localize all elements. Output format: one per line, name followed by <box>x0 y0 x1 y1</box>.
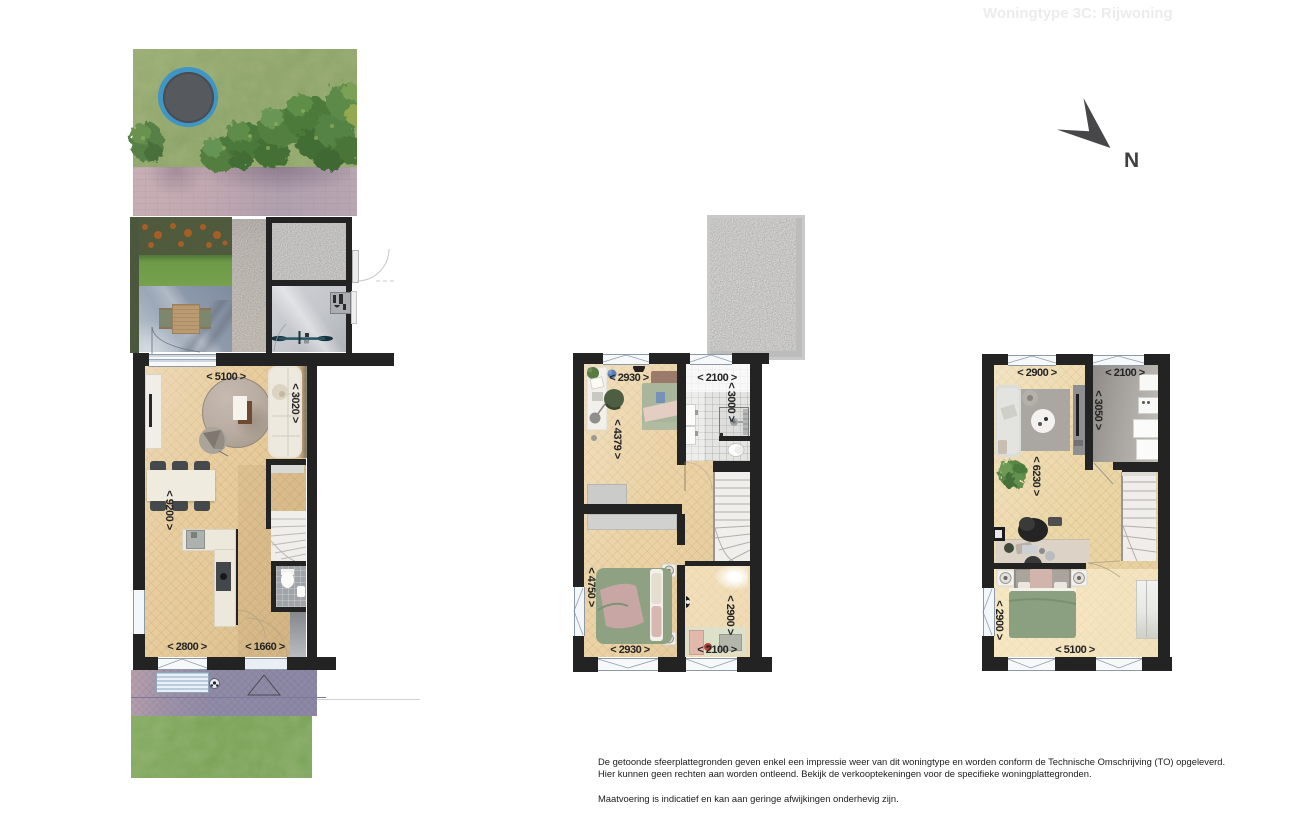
svg-text:N: N <box>1124 149 1139 172</box>
